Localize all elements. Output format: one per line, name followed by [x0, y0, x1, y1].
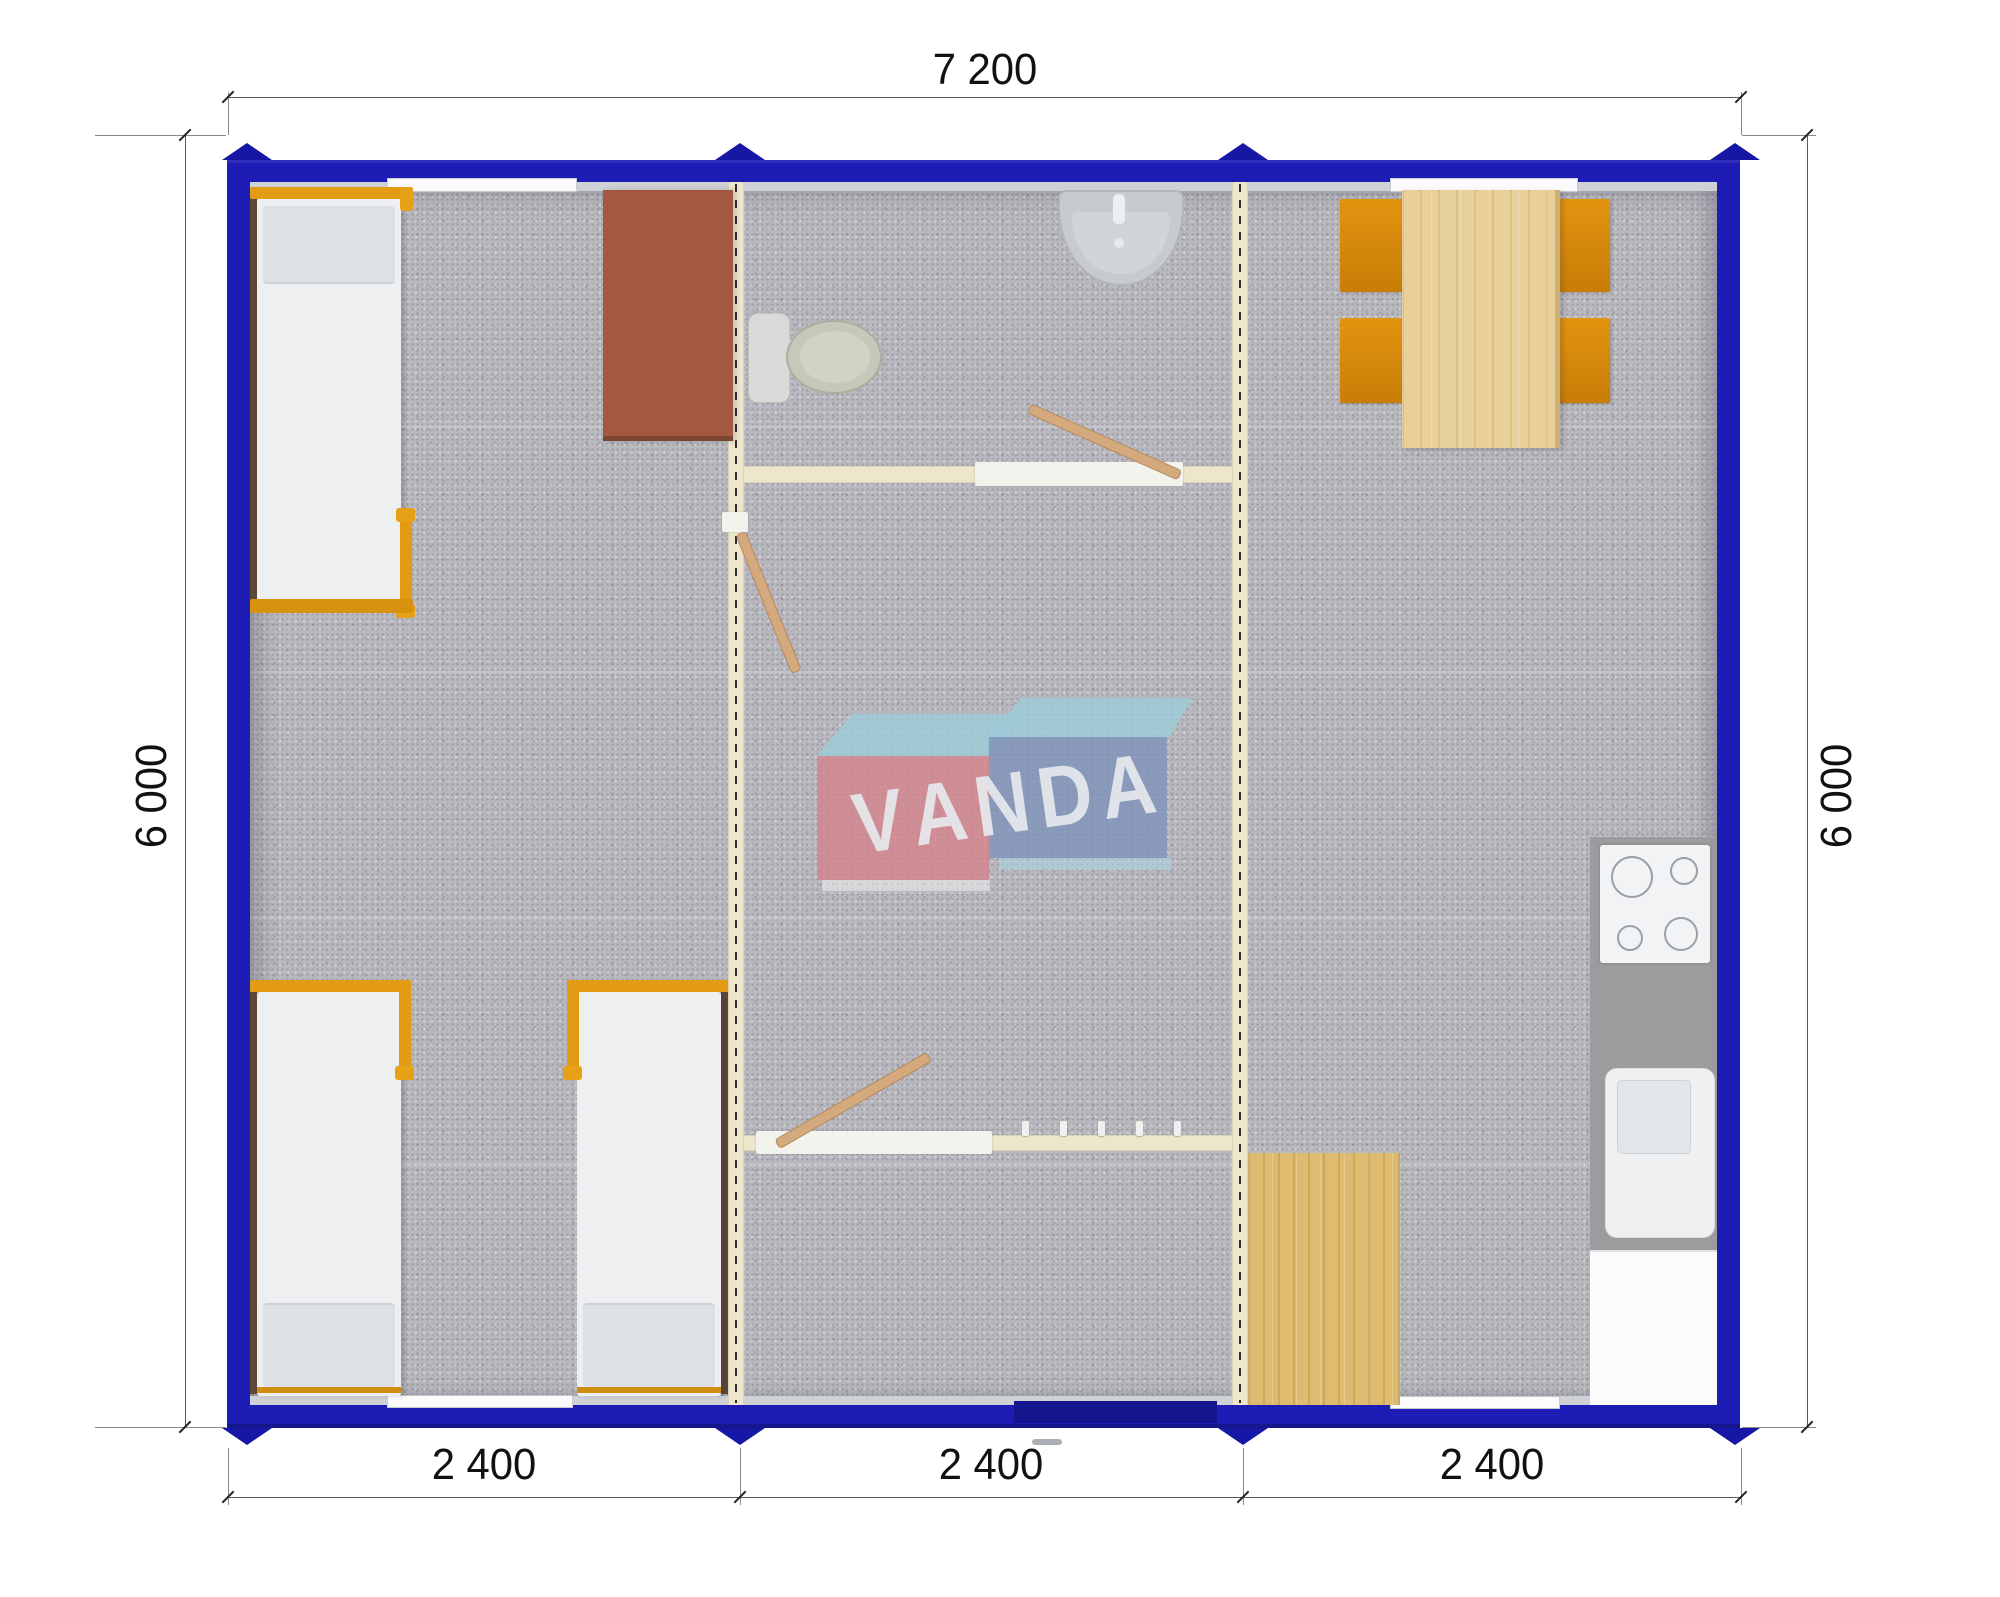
bed-frame-edge	[257, 1387, 401, 1393]
coat-hook	[1174, 1121, 1181, 1136]
bed-frame-bar	[250, 599, 413, 613]
chair	[1558, 199, 1610, 292]
bed-frame-edge	[577, 1387, 721, 1393]
coat-hook	[1098, 1121, 1105, 1136]
window	[387, 178, 577, 192]
extension-line	[228, 92, 229, 135]
dimension-label-right: 6 000	[1813, 715, 1861, 877]
stove-burner	[1664, 917, 1698, 951]
bed-pillow	[583, 1303, 715, 1387]
cabinet	[1590, 1250, 1717, 1405]
watermark-letter: D	[1031, 743, 1101, 849]
dimension-label-module-1: 2 400	[403, 1441, 565, 1489]
watermark-letter: A	[1094, 734, 1164, 840]
watermark-letter: N	[968, 751, 1038, 857]
bed-frame-corner	[395, 1066, 414, 1080]
module-joint-marker	[715, 1428, 765, 1445]
dimension-label-left: 6 000	[128, 715, 176, 877]
partition-wall-right	[1232, 182, 1248, 1405]
kitchen-sink-basin	[1617, 1080, 1691, 1154]
bed-frame-corner	[400, 187, 413, 211]
dimension-line-bottom	[228, 1497, 1742, 1498]
bed-frame-bar	[250, 980, 411, 992]
dimension-label-top: 7 200	[904, 46, 1066, 94]
dimension-label-module-3: 2 400	[1411, 1441, 1573, 1489]
chair	[1340, 199, 1404, 292]
bed-frame-bar	[250, 187, 413, 199]
vanda-watermark: V A N D A	[810, 692, 1200, 907]
coat-hook	[1060, 1121, 1067, 1136]
bed-frame-corner	[396, 508, 415, 522]
bed-side-rail	[250, 992, 257, 1394]
chair	[1340, 318, 1404, 403]
bed-side-rail	[250, 190, 257, 602]
bed-frame-corner	[563, 1066, 582, 1080]
door-jamb-bedroom	[722, 512, 748, 532]
module-joint-marker	[1218, 143, 1268, 160]
watermark-box-top-face	[989, 698, 1192, 737]
toilet-seat	[800, 331, 870, 383]
desk	[603, 190, 733, 441]
entrance-door-handle	[1032, 1439, 1062, 1445]
module-joint-marker	[222, 1428, 272, 1445]
watermark-edge	[822, 880, 990, 891]
bed-pillow	[263, 1303, 395, 1387]
dining-table	[1402, 190, 1560, 448]
module-joint-marker	[1218, 1428, 1268, 1445]
watermark-letter: V	[847, 769, 913, 874]
bed-frame-rail	[399, 980, 411, 1074]
window	[387, 1395, 573, 1408]
module-joint-marker	[1710, 143, 1760, 160]
bed-side-rail	[721, 992, 728, 1394]
entrance-door	[1014, 1401, 1217, 1423]
partition-centerline	[1239, 184, 1241, 1403]
stove-burner	[1670, 857, 1698, 885]
bed-frame-rail	[567, 980, 579, 1074]
faucet-icon	[1113, 194, 1125, 224]
extension-line	[1741, 92, 1742, 135]
watermark-letter: A	[905, 760, 975, 866]
watermark-edge	[1000, 858, 1172, 870]
floor-plan: 7 200 6 000 6 000 2 400 2 400 2 400	[0, 0, 2000, 1597]
partition-centerline	[735, 184, 737, 1403]
bed-frame-bar	[567, 980, 728, 992]
chair	[1558, 318, 1610, 403]
coat-hook	[1022, 1121, 1029, 1136]
bed-pillow	[263, 206, 395, 284]
stove-burner	[1617, 925, 1643, 951]
module-joint-marker	[715, 143, 765, 160]
dimension-line-right	[1807, 135, 1808, 1427]
dimension-line-top	[228, 97, 1742, 98]
wood-mat	[1248, 1153, 1400, 1405]
basin-drain	[1114, 238, 1124, 248]
module-joint-marker	[222, 143, 272, 160]
extension-line	[95, 1427, 226, 1428]
extension-line	[95, 135, 226, 136]
stove-burner	[1611, 856, 1653, 898]
module-joint-marker	[1710, 1428, 1760, 1445]
dimension-line-left	[185, 135, 186, 1427]
dimension-label-module-2: 2 400	[910, 1441, 1072, 1489]
window	[1390, 1396, 1560, 1409]
coat-hook	[1136, 1121, 1143, 1136]
